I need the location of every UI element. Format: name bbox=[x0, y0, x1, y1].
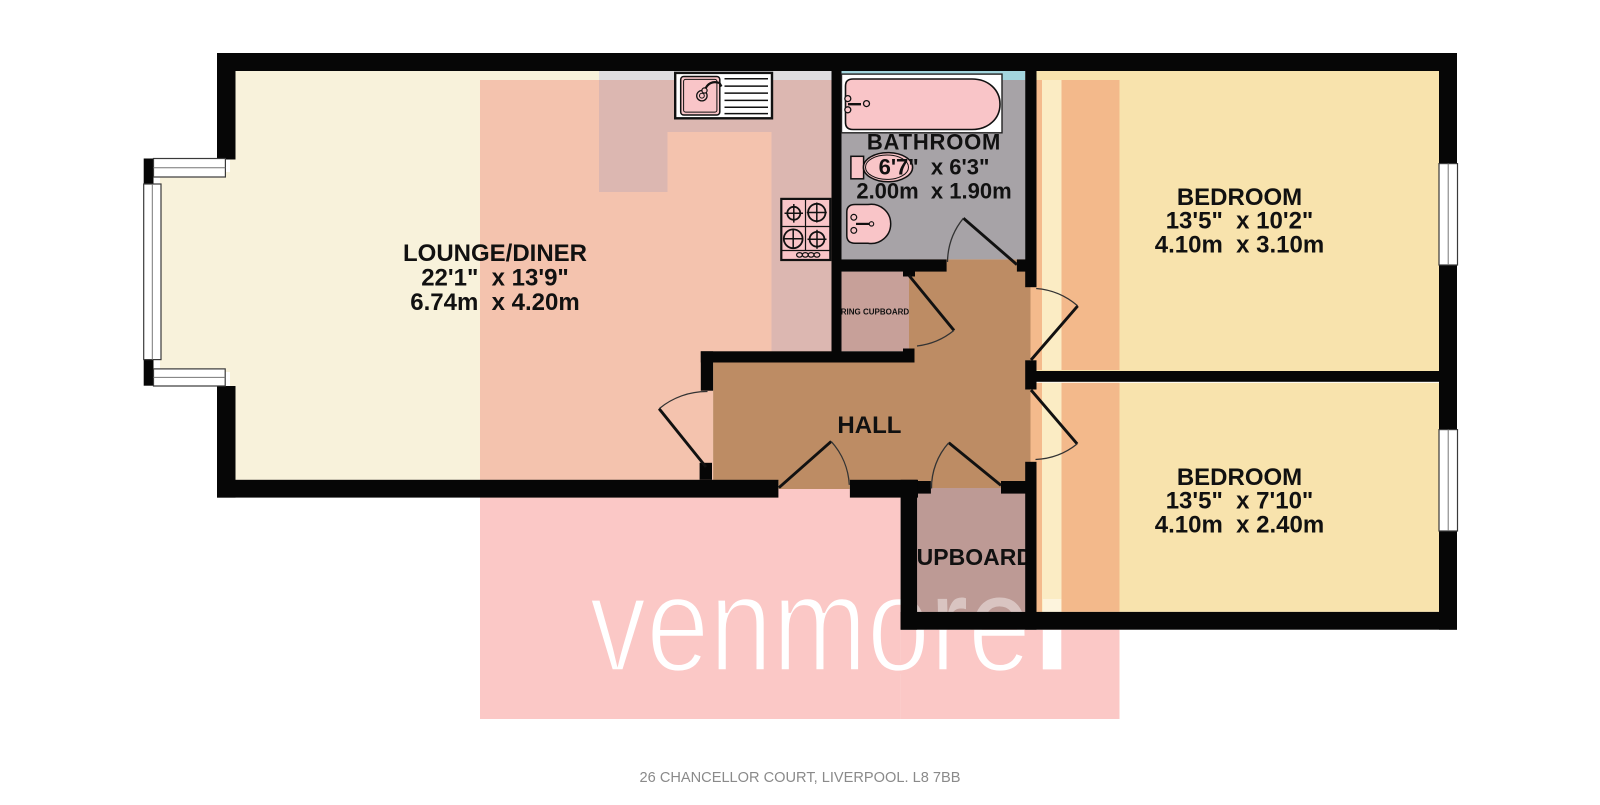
svg-text:6.74m x 4.20m: 6.74m x 4.20m bbox=[410, 289, 579, 316]
svg-text:CUPBOARD: CUPBOARD bbox=[900, 544, 1033, 570]
svg-text:4.10m x 3.10m: 4.10m x 3.10m bbox=[1155, 232, 1324, 259]
svg-text:4.10m x 2.40m: 4.10m x 2.40m bbox=[1155, 512, 1324, 539]
svg-text:6'7" x 6'3": 6'7" x 6'3" bbox=[879, 155, 990, 180]
svg-text:22'1" x 13'9": 22'1" x 13'9" bbox=[421, 265, 569, 292]
svg-text:26 CHANCELLOR COURT, LIVERPOOL: 26 CHANCELLOR COURT, LIVERPOOL. L8 7BB bbox=[640, 770, 961, 786]
svg-text:AIRING CUPBOARD: AIRING CUPBOARD bbox=[833, 308, 910, 317]
svg-text:2.00m x 1.90m: 2.00m x 1.90m bbox=[856, 179, 1011, 204]
svg-text:BATHROOM: BATHROOM bbox=[867, 130, 1001, 155]
svg-text:LOUNGE/DINER: LOUNGE/DINER bbox=[403, 240, 587, 267]
svg-text:13'5" x 7'10": 13'5" x 7'10" bbox=[1166, 488, 1314, 515]
svg-text:HALL: HALL bbox=[837, 412, 901, 439]
